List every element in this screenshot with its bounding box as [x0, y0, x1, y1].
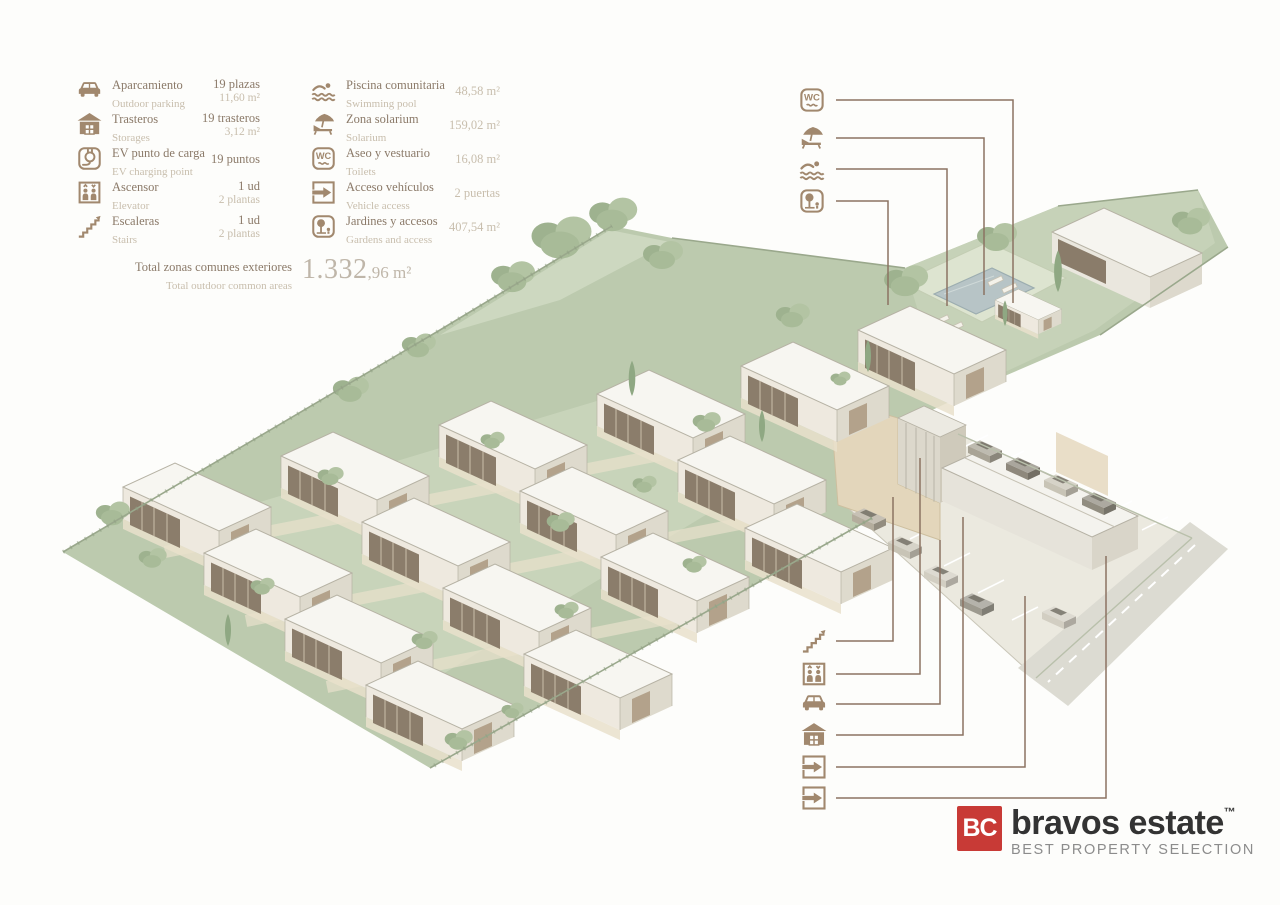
legend-row-ev-charging: EV punto de carga EV charging point 19 p…: [76, 144, 260, 180]
legend-row-stairs: Escaleras Stairs 1 ud 2 plantas: [76, 212, 260, 248]
legend-row-parking: Aparcamiento Outdoor parking 19 plazas 1…: [76, 76, 260, 112]
value: 159,02 m²: [449, 118, 500, 133]
logo-tagline: BEST PROPERTY SELECTION: [1011, 843, 1255, 858]
logo-trademark: ™: [1224, 805, 1236, 819]
logo-name: bravos estate: [1011, 804, 1224, 842]
label-es: Aparcamiento: [112, 78, 183, 92]
label-es: Aseo y vestuario: [346, 146, 430, 160]
total-label-es: Total zonas comunes exteriores: [135, 260, 292, 274]
car-icon: [76, 77, 103, 104]
label-en: Stairs: [112, 234, 137, 246]
label-es: Ascensor: [112, 180, 159, 194]
swimming-pool-icon: [798, 155, 826, 183]
label-es: Jardines y accesos: [346, 214, 438, 228]
storage-icon: [800, 721, 828, 749]
legend-row-vehicle-access: Acceso vehículos Vehicle access 2 puerta…: [310, 178, 500, 214]
wc-icon: [798, 86, 826, 114]
house: [524, 630, 672, 740]
solarium-icon: [310, 111, 337, 138]
total-common-areas: Total zonas comunes exteriores Total out…: [128, 254, 411, 295]
legend-row-pool: Piscina comunitaria Swimming pool 48,58 …: [310, 76, 500, 112]
value: 1 ud: [219, 213, 260, 228]
label-en: Swimming pool: [346, 98, 417, 110]
wc-icon: [310, 145, 337, 172]
legend-row-gardens: Jardines y accesos Gardens and access 40…: [310, 212, 500, 248]
value-2: 3,12 m²: [202, 126, 260, 140]
total-label-en: Total outdoor common areas: [166, 280, 292, 292]
legend-row-toilets: Aseo y vestuario Toilets 16,08 m²: [310, 144, 500, 180]
vehicle-access-icon: [800, 753, 828, 781]
garden-icon: [798, 187, 826, 215]
garden-icon: [310, 213, 337, 240]
vehicle-access-icon: [800, 784, 828, 812]
stairs-icon: [76, 213, 103, 240]
legend-row-storages: Trasteros Storages 19 trasteros 3,12 m²: [76, 110, 260, 146]
label-es: Zona solarium: [346, 112, 419, 126]
label-en: Elevator: [112, 200, 149, 212]
stairs-icon: [800, 627, 828, 655]
brand-logo: BC bravos estate™ BEST PROPERTY SELECTIO…: [957, 806, 1255, 858]
label-es: Acceso vehículos: [346, 180, 434, 194]
value-2: 2 plantas: [219, 228, 260, 242]
value-2: 2 plantas: [219, 194, 260, 208]
value: 407,54 m²: [449, 220, 500, 235]
label-es: Escaleras: [112, 214, 159, 228]
value: 2 puertas: [455, 186, 500, 201]
total-value-main: 1.332: [302, 254, 368, 285]
value: 19 puntos: [211, 152, 260, 167]
value: 16,08 m²: [455, 152, 500, 167]
label-en: Gardens and access: [346, 234, 432, 246]
masterplan-page: WC Aparcamiento Outdoor parking 19 plaza…: [0, 0, 1280, 905]
label-en: Outdoor parking: [112, 98, 185, 110]
value-2: 11,60 m²: [213, 92, 260, 106]
legend-row-elevator: Ascensor Elevator 1 ud 2 plantas: [76, 178, 260, 214]
label-en: Vehicle access: [346, 200, 410, 212]
label-en: EV charging point: [112, 166, 193, 178]
value: 1 ud: [219, 179, 260, 194]
solarium-icon: [798, 124, 826, 152]
value: 19 plazas: [213, 77, 260, 92]
swimming-pool-icon: [310, 77, 337, 104]
total-value-unit: ,96 m²: [368, 263, 412, 282]
elevator-icon: [76, 179, 103, 206]
label-en: Solarium: [346, 132, 386, 144]
label-es: Trasteros: [112, 112, 158, 126]
label-en: Toilets: [346, 166, 376, 178]
legend-row-solarium: Zona solarium Solarium 159,02 m²: [310, 110, 500, 146]
ev-charging-icon: [76, 145, 103, 172]
label-es: Piscina comunitaria: [346, 78, 445, 92]
storage-icon: [76, 111, 103, 138]
total-value: 1.332,96 m²: [302, 254, 411, 286]
value: 48,58 m²: [455, 84, 500, 99]
value: 19 trasteros: [202, 111, 260, 126]
label-en: Storages: [112, 132, 150, 144]
elevator-icon: [800, 660, 828, 688]
logo-monogram: BC: [957, 806, 1002, 851]
label-es: EV punto de carga: [112, 146, 205, 160]
vehicle-access-icon: [310, 179, 337, 206]
car-icon: [800, 690, 828, 718]
